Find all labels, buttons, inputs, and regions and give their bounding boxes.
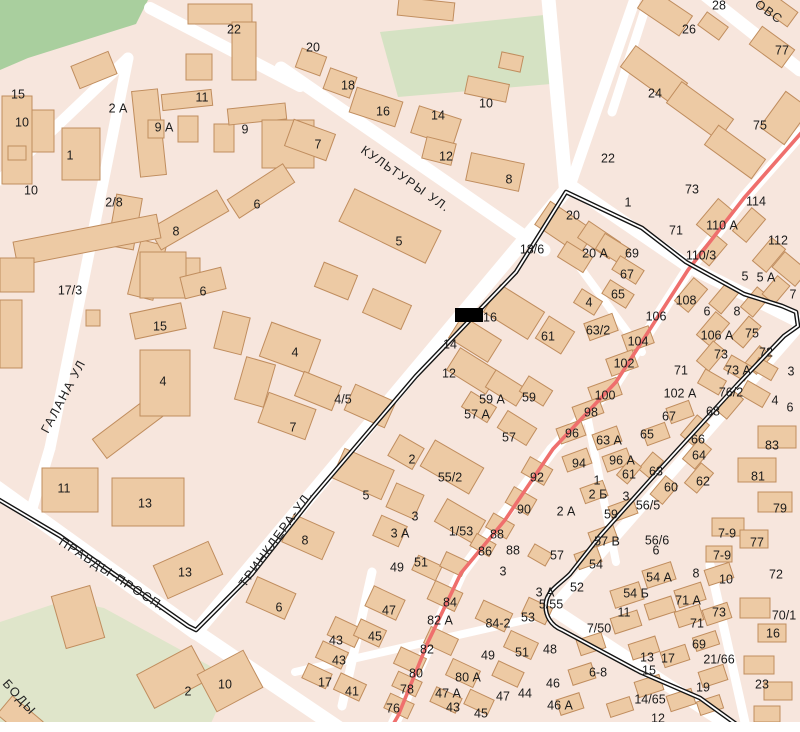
building-number-label: 6-8: [589, 665, 607, 679]
city-map[interactable]: 2215102 А119 А91102/88617/36154111313210…: [0, 0, 800, 732]
building-number-label: 81: [751, 469, 765, 483]
building-number-label: 8: [506, 172, 513, 186]
building: [8, 146, 26, 160]
building-number-label: 5 А: [757, 270, 776, 284]
building-number-label: 7: [290, 420, 297, 434]
building-number-label: 17/3: [58, 283, 82, 297]
building-number-label: 11: [58, 481, 71, 495]
building-number-label: 45: [474, 706, 488, 720]
building-number-label: 102 А: [664, 386, 697, 400]
building-number-label: 2: [409, 452, 416, 466]
building-number-label: 63 А: [596, 433, 622, 447]
building-number-label: 3: [623, 489, 630, 503]
building-number-label: 67: [620, 267, 634, 281]
building-number-label: 16: [376, 104, 390, 118]
building-number-label: 11: [196, 90, 209, 104]
building-number-label: 72: [769, 567, 783, 581]
building: [754, 706, 780, 722]
building-number-label: 57 В: [594, 534, 620, 548]
building-number-label: 17: [661, 651, 675, 665]
building-number-label: 52: [570, 580, 584, 594]
building-number-label: 22: [601, 151, 615, 165]
building-number-label: 12: [442, 366, 456, 380]
building-number-label: 44: [518, 686, 532, 700]
building-number-label: 43: [329, 633, 343, 647]
building-number-label: 57: [550, 548, 564, 562]
building-number-label: 14: [443, 337, 457, 351]
building-number-label: 49: [390, 560, 404, 574]
building-number-label: 5: [742, 269, 749, 283]
building-number-label: 4: [292, 345, 299, 359]
building-number-label: 82: [420, 642, 434, 656]
building-number-label: 13: [138, 496, 152, 510]
building-number-label: 110/3: [686, 248, 716, 262]
building-number-label: 3: [412, 509, 419, 523]
building-number-label: 7: [790, 287, 797, 301]
building-number-label: 48: [543, 642, 557, 656]
building-number-label: 12: [439, 149, 453, 163]
building-number-label: 79: [773, 501, 787, 515]
building-number-label: 67: [662, 409, 676, 423]
building-number-label: 10: [15, 115, 29, 129]
building-number-label: 20 А: [582, 246, 608, 260]
building-number-label: 5: [396, 234, 403, 248]
building-number-label: 9: [242, 122, 249, 136]
building-number-label: 78: [400, 682, 414, 696]
building-number-label: 47: [496, 689, 510, 703]
building-number-label: 106 А: [701, 328, 734, 342]
building-number-label: 53: [521, 610, 535, 624]
building-number-label: 1/53: [449, 524, 473, 538]
building-number-label: 4: [586, 295, 593, 309]
building-number-label: 57: [502, 430, 516, 444]
building-number-label: 54 Б: [623, 586, 649, 600]
building-number-label: 104: [628, 334, 649, 348]
building-number-label: 2/8: [105, 195, 122, 209]
building-number-label: 47 А: [435, 686, 461, 700]
building-number-label: 57 А: [464, 407, 490, 421]
building-number-label: 92: [530, 470, 544, 484]
building-number-label: 16: [483, 310, 497, 324]
building-number-label: 10: [479, 96, 493, 110]
building-number-label: 16: [766, 626, 780, 640]
building-number-label: 54: [589, 557, 603, 571]
building-number-label: 6: [200, 284, 207, 298]
building-number-label: 18/6: [520, 242, 544, 256]
building-number-label: 63/2: [586, 323, 610, 337]
building-number-label: 80 А: [455, 670, 481, 684]
building-number-label: 84: [443, 595, 457, 609]
building-number-label: 71 А: [675, 593, 701, 607]
building-number-label: 10: [24, 183, 38, 197]
building-number-label: 73 А: [725, 363, 751, 377]
building-number-label: 7/50: [587, 621, 611, 635]
building-number-label: 96 А: [609, 453, 635, 467]
building-number-label: 7: [315, 137, 322, 151]
building-number-label: 106: [646, 309, 667, 323]
building-number-label: 14/65: [634, 692, 665, 706]
building-number-label: 47: [382, 603, 396, 617]
building-number-label: 9 А: [155, 120, 174, 134]
building-number-label: 20: [566, 208, 580, 222]
building: [32, 110, 54, 152]
building-number-label: 51: [414, 555, 428, 569]
building-number-label: 1: [67, 148, 74, 162]
building-number-label: 45: [368, 629, 382, 643]
building-number-label: 15: [153, 319, 167, 333]
building-number-label: 98: [584, 405, 598, 419]
building-number-label: 84-2: [485, 616, 510, 630]
building: [744, 656, 774, 674]
building: [0, 300, 22, 368]
building-number-label: 13: [640, 650, 654, 664]
building-number-label: 8: [173, 224, 180, 238]
building-number-label: 73: [714, 347, 728, 361]
building-number-label: 26: [682, 22, 696, 36]
building-number-label: 69: [625, 246, 639, 260]
building-number-label: 49: [481, 648, 495, 662]
building-number-label: 6: [254, 197, 261, 211]
building: [0, 258, 34, 292]
building-number-label: 10: [218, 677, 232, 691]
building-number-label: 55/2: [438, 470, 462, 484]
building-number-label: 13: [178, 565, 192, 579]
building-number-label: 75: [745, 326, 759, 340]
selected-building-marker[interactable]: [455, 308, 483, 322]
building-number-label: 88: [490, 527, 504, 541]
building-number-label: 80: [409, 666, 423, 680]
building-number-label: 83: [765, 438, 779, 452]
building-number-label: 8: [734, 304, 741, 318]
building-number-label: 61: [541, 329, 555, 343]
building-number-label: 4/5: [334, 392, 351, 406]
building-number-label: 112: [768, 233, 788, 247]
building-number-label: 3 А: [391, 526, 410, 540]
building: [2, 96, 32, 184]
building-number-label: 90: [517, 502, 531, 516]
building-number-label: 2 А: [109, 101, 128, 115]
building-number-label: 59: [604, 507, 618, 521]
building-number-label: 22: [227, 22, 241, 36]
building-number-label: 4: [160, 374, 167, 388]
building-number-label: 64: [692, 448, 706, 462]
building-number-label: 28: [712, 0, 726, 12]
building-number-label: 77: [775, 43, 789, 57]
building-number-label: 86: [478, 544, 492, 558]
building-number-label: 65: [640, 427, 654, 441]
building-number-label: 14: [431, 108, 445, 122]
building-number-label: 70/1: [772, 608, 796, 622]
building-number-label: 46: [546, 676, 560, 690]
building-number-label: 19: [696, 680, 710, 694]
building-number-label: 72: [759, 345, 773, 359]
building-number-label: 96: [565, 426, 579, 440]
building-number-label: 23: [755, 677, 769, 691]
building-number-label: 69: [692, 637, 706, 651]
building: [740, 598, 770, 618]
building-number-label: 2 А: [557, 504, 576, 518]
building-number-label: 7-9: [713, 548, 731, 562]
building-number-label: 7-9: [718, 526, 736, 540]
building-number-label: 73: [685, 182, 699, 196]
building-number-label: 1: [625, 195, 632, 209]
building-number-label: 8: [302, 533, 309, 547]
building-number-label: 59 А: [479, 392, 505, 406]
building: [214, 124, 234, 152]
map-bottom-edge: [0, 722, 800, 732]
building-number-label: 77: [750, 535, 764, 549]
map-canvas[interactable]: 2215102 А119 А91102/88617/36154111313210…: [0, 0, 800, 732]
building-number-label: 46 А: [547, 698, 573, 712]
building-number-label: 43: [446, 700, 460, 714]
building-number-label: 60: [664, 480, 678, 494]
building-number-label: 71: [690, 616, 704, 630]
building-number-label: 62: [696, 474, 710, 488]
building-number-label: 8: [693, 566, 700, 580]
building-number-label: 75: [753, 118, 767, 132]
building: [86, 310, 100, 326]
building-number-label: 6: [653, 543, 660, 557]
building-number-label: 102: [614, 356, 635, 370]
building-number-label: 108: [676, 293, 697, 307]
building-number-label: 24: [648, 86, 662, 100]
building-number-label: 114: [746, 194, 766, 208]
building: [140, 252, 186, 298]
building-number-label: 5/55: [539, 597, 563, 611]
building-number-label: 94: [572, 456, 586, 470]
building-number-label: 18: [341, 78, 355, 92]
building-number-label: 65: [611, 287, 625, 301]
building-number-label: 4: [772, 393, 779, 407]
building-number-label: 5: [363, 488, 370, 502]
building-number-label: 59: [522, 390, 536, 404]
building-number-label: 2: [185, 684, 192, 698]
building-number-label: 73: [712, 605, 726, 619]
building-number-label: 71: [674, 363, 688, 377]
building-number-label: 76: [386, 701, 400, 715]
building-number-label: 61: [622, 467, 636, 481]
building-number-label: 6: [276, 600, 283, 614]
building-number-label: 3: [500, 564, 507, 578]
building-number-label: 15: [11, 87, 25, 101]
building-number-label: 51: [515, 645, 529, 659]
building-number-label: 43: [332, 653, 346, 667]
building-number-label: 82 А: [427, 613, 453, 627]
building-number-label: 56/5: [636, 498, 660, 512]
building-number-label: 110 А: [706, 218, 738, 232]
building-number-label: 15: [642, 663, 656, 677]
building-number-label: 100: [595, 388, 616, 402]
building-number-label: 10: [719, 572, 733, 586]
building-number-label: 63: [649, 464, 663, 478]
building-number-label: 3: [788, 364, 795, 378]
building-number-label: 17: [318, 675, 332, 689]
building-number-label: 54 А: [646, 570, 672, 584]
building-number-label: 76/2: [719, 385, 743, 399]
building-number-label: 21/66: [703, 652, 734, 666]
building-number-label: 1: [594, 473, 601, 487]
building-number-label: 11: [618, 605, 631, 619]
building-number-label: 6: [704, 304, 711, 318]
building-number-label: 6: [787, 400, 794, 414]
building-number-label: 66: [691, 432, 705, 446]
building: [188, 4, 252, 24]
building-number-label: 68: [706, 404, 720, 418]
building-number-label: 88: [506, 543, 520, 557]
building-number-label: 41: [345, 684, 359, 698]
building-number-label: 71: [669, 223, 683, 237]
building-number-label: 2 Б: [589, 487, 608, 501]
building-number-label: 20: [306, 40, 320, 54]
building: [178, 116, 198, 142]
building: [186, 54, 212, 80]
